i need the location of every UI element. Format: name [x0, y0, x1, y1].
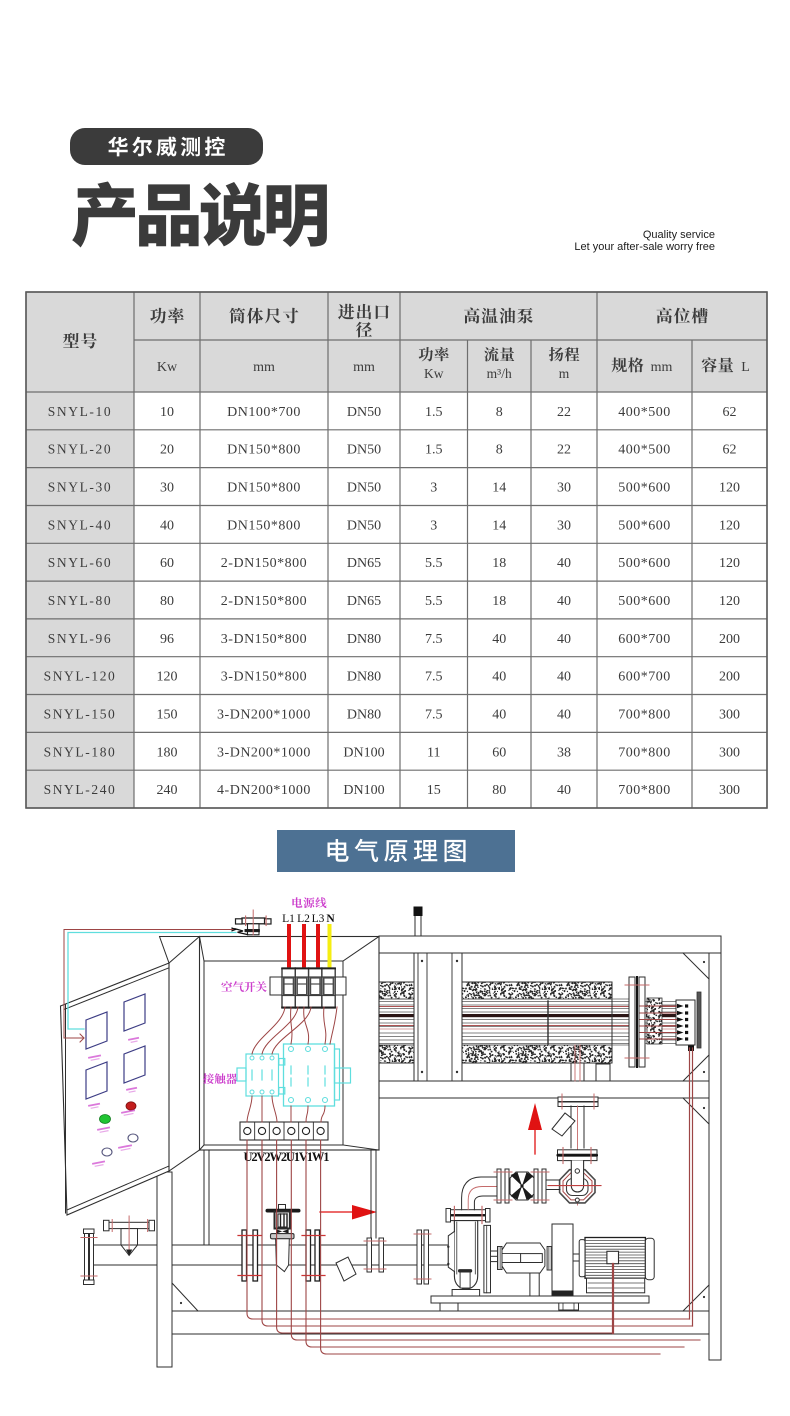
svg-text:DN50: DN50: [347, 518, 381, 533]
svg-text:Quality service: Quality service: [643, 229, 715, 241]
svg-text:1.5: 1.5: [425, 443, 443, 458]
svg-text:DN100*700: DN100*700: [227, 405, 301, 420]
svg-text:500*600: 500*600: [618, 556, 671, 571]
svg-text:DN50: DN50: [347, 443, 381, 458]
svg-text:7.5: 7.5: [425, 632, 443, 647]
svg-text:3: 3: [430, 518, 437, 533]
svg-text:m: m: [559, 366, 570, 381]
svg-text:DN150*800: DN150*800: [227, 481, 301, 496]
svg-text:L1: L1: [282, 913, 295, 925]
svg-text:500*600: 500*600: [618, 481, 671, 496]
svg-text:60: 60: [160, 556, 174, 571]
svg-text:Kw: Kw: [424, 366, 444, 381]
svg-text:N: N: [326, 913, 335, 925]
svg-text:80: 80: [492, 783, 506, 798]
svg-text:300: 300: [719, 783, 740, 798]
svg-text:600*700: 600*700: [618, 670, 671, 685]
svg-text:mm: mm: [353, 360, 375, 375]
svg-text:62: 62: [723, 405, 737, 420]
svg-text:11: 11: [427, 745, 440, 760]
svg-text:SNYL-240: SNYL-240: [44, 782, 117, 797]
svg-text:m³/h: m³/h: [487, 366, 512, 381]
svg-text:22: 22: [557, 443, 571, 458]
svg-text:3-DN200*1000: 3-DN200*1000: [217, 745, 311, 760]
svg-text:3: 3: [430, 481, 437, 496]
svg-text:38: 38: [557, 745, 571, 760]
svg-text:400*500: 400*500: [618, 405, 671, 420]
svg-text:300: 300: [719, 708, 740, 723]
svg-text:700*800: 700*800: [618, 745, 671, 760]
svg-text:DN65: DN65: [347, 594, 381, 609]
svg-text:U2V2W2U1V1W1: U2V2W2U1V1W1: [244, 1150, 330, 1164]
svg-text:8: 8: [496, 405, 503, 420]
svg-text:40: 40: [557, 594, 571, 609]
svg-text:500*600: 500*600: [618, 518, 671, 533]
svg-text:40: 40: [492, 670, 506, 685]
svg-text:DN50: DN50: [347, 481, 381, 496]
svg-text:SNYL-80: SNYL-80: [48, 593, 112, 608]
svg-text:600*700: 600*700: [618, 632, 671, 647]
svg-text:20: 20: [160, 443, 174, 458]
svg-text:30: 30: [557, 518, 571, 533]
svg-text:DN100: DN100: [343, 745, 384, 760]
svg-text:Kw: Kw: [157, 360, 178, 375]
svg-text:120: 120: [719, 594, 740, 609]
svg-text:700*800: 700*800: [618, 783, 671, 798]
svg-text:mm: mm: [253, 360, 275, 375]
svg-text:10: 10: [160, 405, 174, 420]
svg-text:L3: L3: [312, 913, 325, 925]
svg-text:SNYL-60: SNYL-60: [48, 555, 112, 570]
svg-text:SNYL-120: SNYL-120: [44, 669, 117, 684]
svg-text:96: 96: [160, 632, 174, 647]
svg-text:Let your after-sale worry free: Let your after-sale worry free: [574, 241, 715, 253]
svg-text:DN50: DN50: [347, 405, 381, 420]
svg-text:150: 150: [157, 708, 178, 723]
svg-text:40: 40: [160, 518, 174, 533]
svg-text:40: 40: [557, 556, 571, 571]
svg-text:4-DN200*1000: 4-DN200*1000: [217, 783, 311, 798]
svg-text:3-DN200*1000: 3-DN200*1000: [217, 708, 311, 723]
svg-text:2-DN150*800: 2-DN150*800: [221, 594, 307, 609]
svg-text:5.5: 5.5: [425, 594, 443, 609]
svg-text:700*800: 700*800: [618, 708, 671, 723]
svg-text:SNYL-20: SNYL-20: [48, 442, 112, 457]
svg-text:8: 8: [496, 443, 503, 458]
svg-text:200: 200: [719, 632, 740, 647]
svg-text:SNYL-30: SNYL-30: [48, 480, 112, 495]
svg-text:18: 18: [492, 594, 506, 609]
svg-text:80: 80: [160, 594, 174, 609]
svg-text:L: L: [741, 360, 750, 375]
svg-text:DN100: DN100: [343, 783, 384, 798]
svg-text:40: 40: [557, 670, 571, 685]
svg-text:DN80: DN80: [347, 670, 381, 685]
svg-text:60: 60: [492, 745, 506, 760]
svg-text:SNYL-10: SNYL-10: [48, 404, 112, 419]
svg-text:240: 240: [157, 783, 178, 798]
svg-text:30: 30: [160, 481, 174, 496]
svg-text:40: 40: [557, 708, 571, 723]
svg-text:15: 15: [427, 783, 441, 798]
svg-text:3-DN150*800: 3-DN150*800: [221, 632, 307, 647]
svg-text:120: 120: [719, 481, 740, 496]
svg-text:mm: mm: [651, 360, 673, 375]
svg-text:120: 120: [719, 518, 740, 533]
svg-text:40: 40: [557, 783, 571, 798]
svg-text:SNYL-150: SNYL-150: [44, 707, 117, 722]
svg-text:40: 40: [492, 632, 506, 647]
svg-text:7.5: 7.5: [425, 708, 443, 723]
svg-text:14: 14: [492, 518, 506, 533]
svg-text:62: 62: [723, 443, 737, 458]
svg-text:SNYL-96: SNYL-96: [48, 631, 112, 646]
svg-text:DN80: DN80: [347, 708, 381, 723]
svg-text:200: 200: [719, 670, 740, 685]
svg-text:30: 30: [557, 481, 571, 496]
svg-text:SNYL-180: SNYL-180: [44, 744, 117, 759]
svg-text:L2: L2: [297, 913, 310, 925]
svg-text:400*500: 400*500: [618, 443, 671, 458]
svg-text:120: 120: [719, 556, 740, 571]
svg-text:22: 22: [557, 405, 571, 420]
svg-text:40: 40: [557, 632, 571, 647]
svg-text:DN80: DN80: [347, 632, 381, 647]
svg-text:2-DN150*800: 2-DN150*800: [221, 556, 307, 571]
svg-text:40: 40: [492, 708, 506, 723]
svg-text:DN150*800: DN150*800: [227, 443, 301, 458]
svg-text:3-DN150*800: 3-DN150*800: [221, 670, 307, 685]
svg-text:1.5: 1.5: [425, 405, 443, 420]
svg-text:5.5: 5.5: [425, 556, 443, 571]
svg-text:14: 14: [492, 481, 506, 496]
svg-text:18: 18: [492, 556, 506, 571]
svg-text:DN65: DN65: [347, 556, 381, 571]
svg-text:500*600: 500*600: [618, 594, 671, 609]
svg-text:7.5: 7.5: [425, 670, 443, 685]
svg-text:DN150*800: DN150*800: [227, 518, 301, 533]
svg-text:300: 300: [719, 745, 740, 760]
svg-text:120: 120: [157, 670, 178, 685]
svg-text:180: 180: [157, 745, 178, 760]
svg-text:SNYL-40: SNYL-40: [48, 517, 112, 532]
